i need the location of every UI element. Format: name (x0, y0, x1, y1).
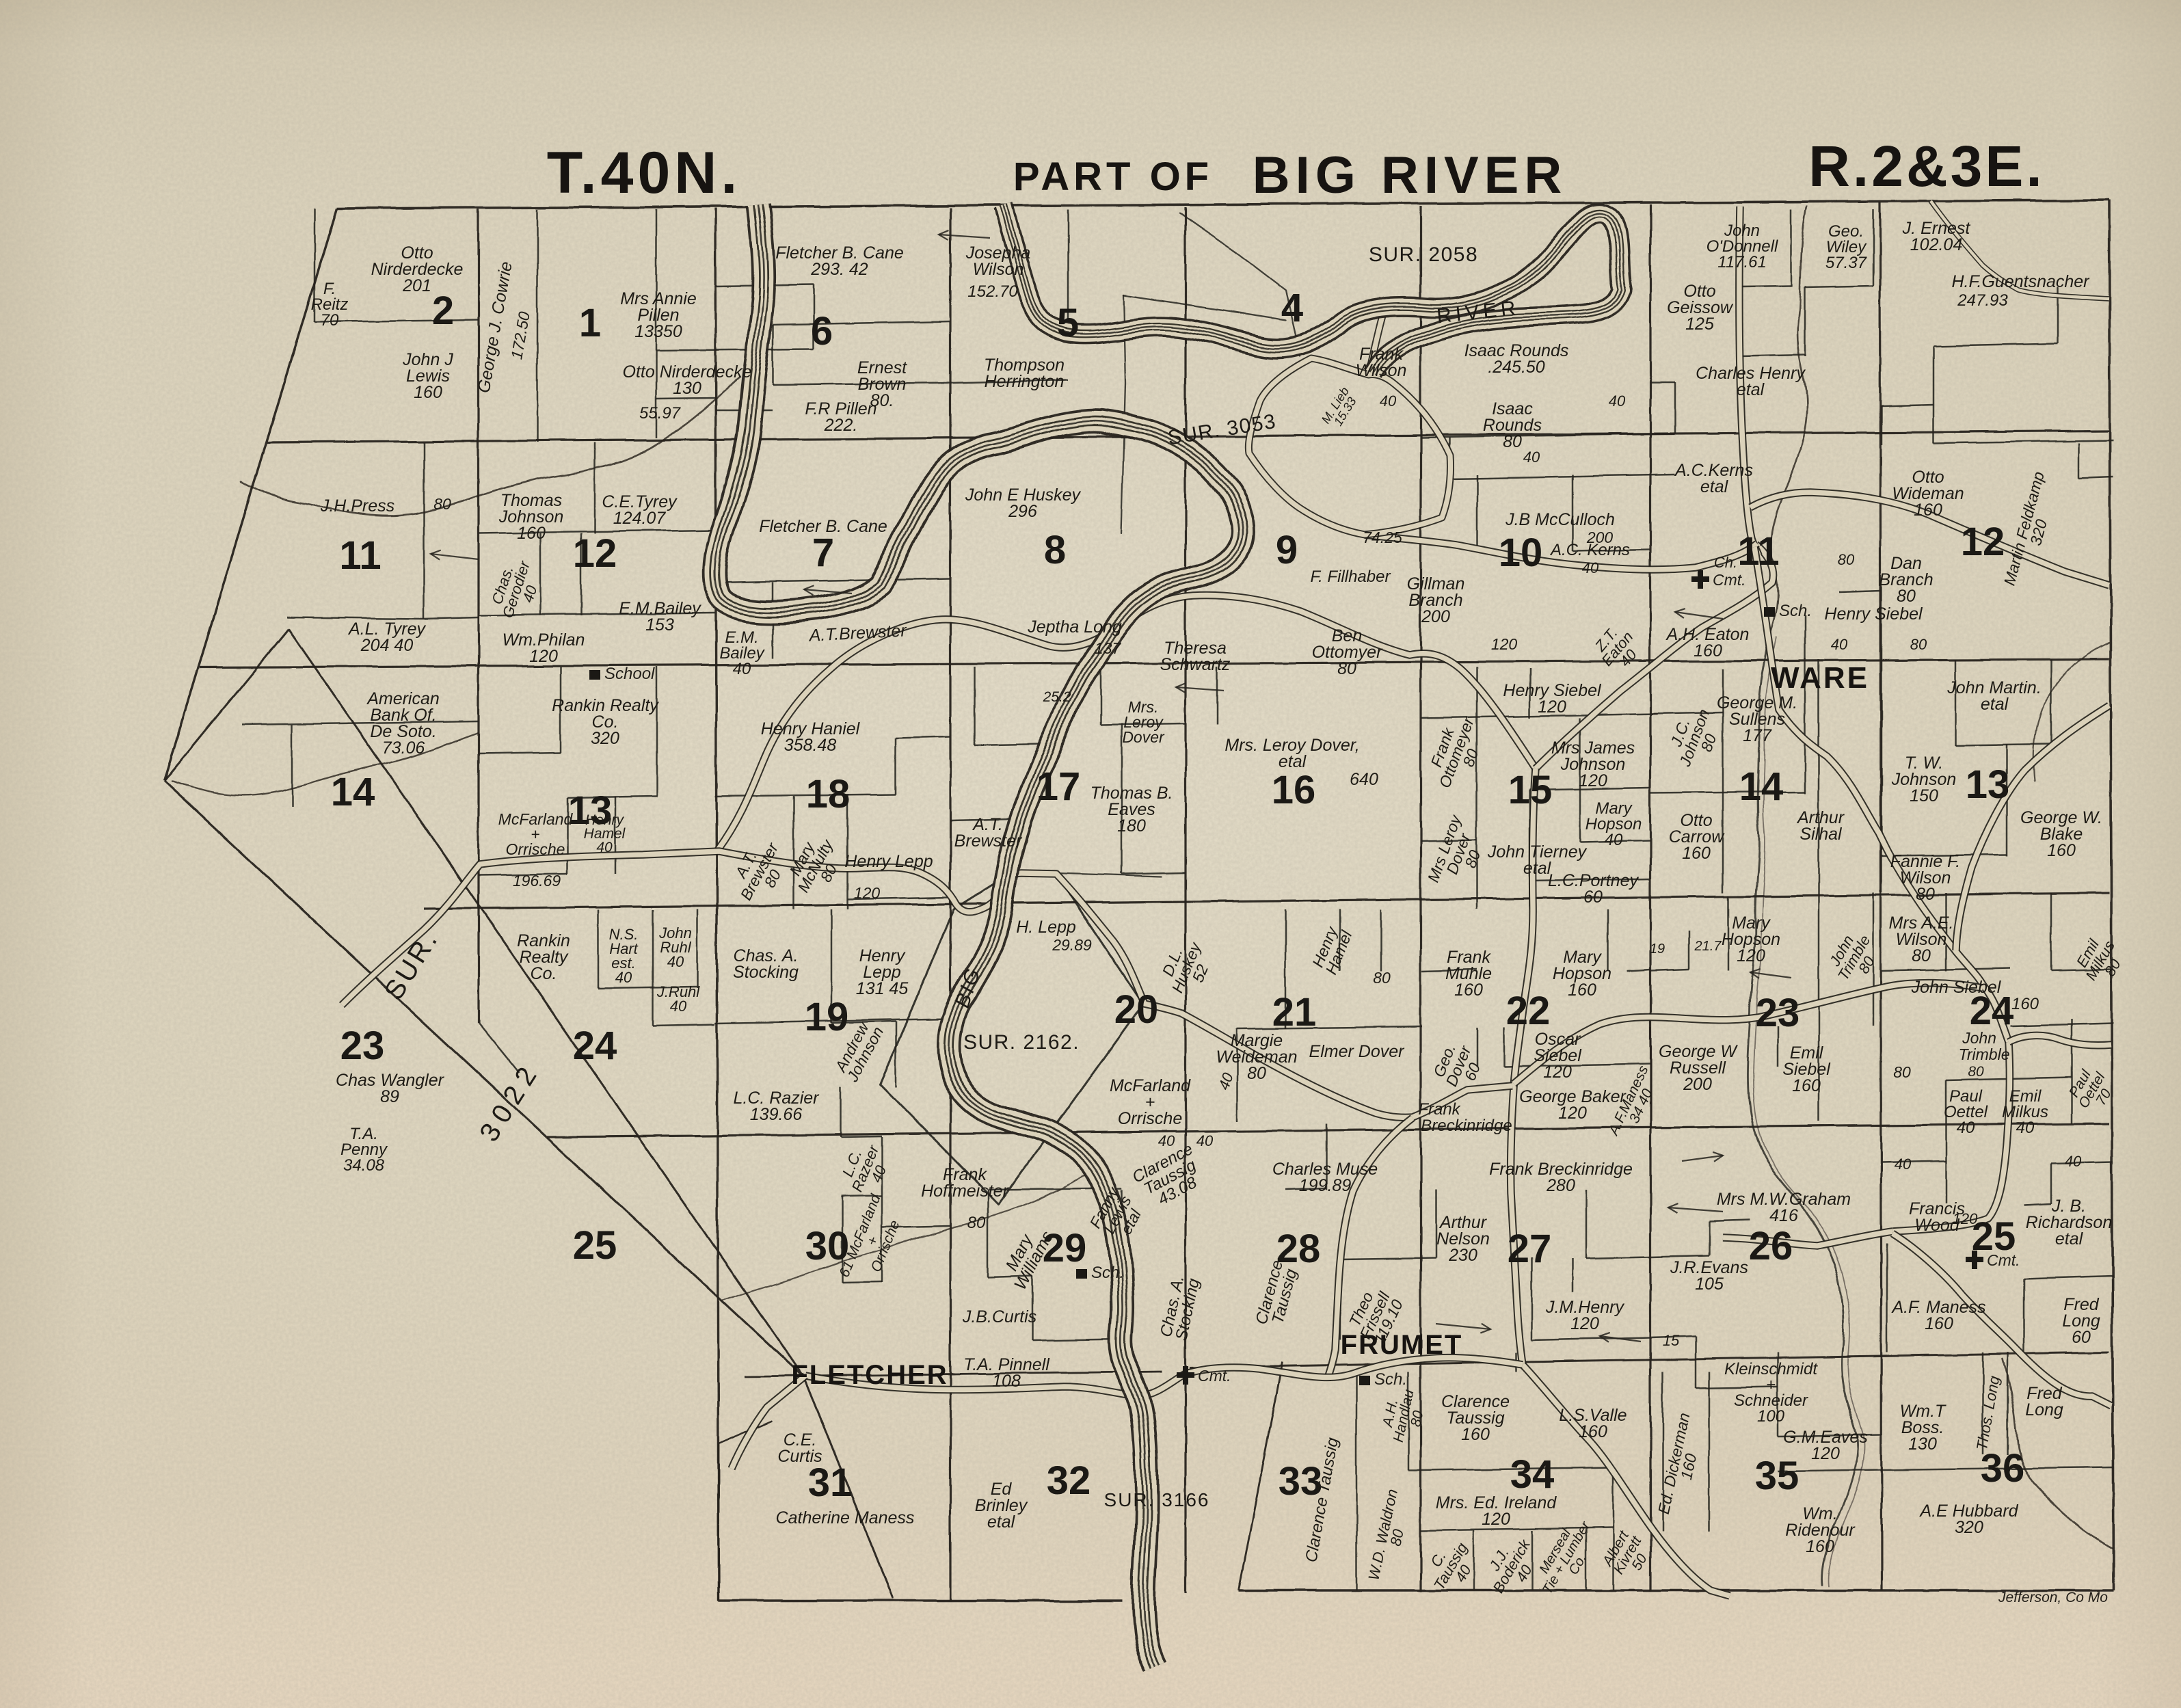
svg-text:H.F.Guentsnacher: H.F.Guentsnacher (1951, 272, 2090, 291)
svg-text:SUR. 2058: SUR. 2058 (1369, 243, 1478, 266)
svg-text:40: 40 (1215, 1070, 1237, 1092)
svg-text:Chas.Gerodier40: Chas.Gerodier40 (485, 554, 548, 625)
svg-text:T.A.Penny34.08: T.A.Penny34.08 (340, 1125, 388, 1175)
svg-text:Cmt.: Cmt. (1987, 1251, 2020, 1269)
svg-text:18: 18 (806, 772, 851, 816)
svg-text:Mrs. Ed. Ireland120: Mrs. Ed. Ireland120 (1436, 1493, 1557, 1529)
svg-text:C.E.Curtis: C.E.Curtis (777, 1430, 822, 1466)
svg-text:55.97: 55.97 (639, 404, 682, 423)
svg-text:40: 40 (1523, 449, 1540, 466)
svg-text:80: 80 (433, 495, 451, 513)
svg-text:OscarSiebel120: OscarSiebel120 (1534, 1030, 1582, 1082)
svg-text:J.R.Evans105: J.R.Evans105 (1670, 1258, 1748, 1294)
svg-text:ArthurSilhal: ArthurSilhal (1796, 808, 1845, 844)
svg-text:Sch.: Sch. (1374, 1370, 1407, 1389)
svg-text:RankinRealtyCo.: RankinRealtyCo. (517, 931, 570, 983)
svg-text:Frank: Frank (1418, 1100, 1461, 1119)
svg-text:Jefferson, Co Mo: Jefferson, Co Mo (1998, 1590, 2108, 1605)
svg-text:BIG RIVER: BIG RIVER (1253, 146, 1568, 204)
svg-text:Catherine Maness: Catherine Maness (776, 1508, 915, 1527)
svg-text:McFarland+Orrische: McFarland+Orrische (1110, 1076, 1191, 1128)
svg-text:J.B.Curtis: J.B.Curtis (962, 1307, 1036, 1326)
svg-text:JosephaWilson: JosephaWilson (965, 243, 1031, 279)
svg-text:EmilSiebel160: EmilSiebel160 (1782, 1043, 1831, 1095)
svg-text:SUR. 3053: SUR. 3053 (1166, 410, 1278, 450)
svg-text:35: 35 (1755, 1454, 1799, 1498)
svg-text:152.70: 152.70 (967, 282, 1018, 301)
svg-text:Sch.: Sch. (1779, 602, 1812, 620)
svg-text:SUR. 3166: SUR. 3166 (1104, 1489, 1210, 1510)
svg-text:40: 40 (2065, 1153, 2082, 1170)
svg-text:J.B McCulloch: J.B McCulloch (1505, 510, 1615, 529)
svg-text:L.C.Portney60: L.C.Portney60 (1548, 871, 1640, 907)
svg-text:Trimble: Trimble (1959, 1045, 2010, 1063)
svg-text:19: 19 (805, 995, 849, 1039)
svg-text:AlbertKivrett50: AlbertKivrett50 (1599, 1526, 1657, 1584)
svg-text:Mrs.LeroyDover: Mrs.LeroyDover (1122, 698, 1165, 746)
svg-text:T.40N.: T.40N. (547, 140, 742, 206)
svg-text:ClarenceTaussig160: ClarenceTaussig160 (1441, 1392, 1510, 1444)
svg-text:John E Huskey296: John E Huskey296 (965, 485, 1082, 521)
svg-text:5: 5 (1057, 301, 1079, 345)
svg-text:E.M.Bailey40: E.M.Bailey40 (719, 628, 765, 678)
svg-text:A.C. Kerns: A.C. Kerns (1549, 541, 1630, 559)
svg-text:25: 25 (573, 1223, 617, 1268)
svg-text:AmericanBank Of.De Soto.73.06: AmericanBank Of.De Soto.73.06 (366, 689, 440, 758)
svg-text:Charles Henryetal: Charles Henryetal (1696, 364, 1806, 399)
svg-text:George WRussell200: George WRussell200 (1659, 1042, 1738, 1094)
svg-text:21.7: 21.7 (1694, 939, 1722, 954)
svg-text:13: 13 (1966, 762, 2010, 807)
svg-text:A.H. Eaton160: A.H. Eaton160 (1665, 625, 1750, 660)
svg-text:HenryHamel: HenryHamel (1308, 922, 1356, 976)
svg-text:1: 1 (579, 301, 601, 345)
svg-text:ArthurNelson230: ArthurNelson230 (1436, 1213, 1490, 1265)
svg-text:Cmt.: Cmt. (1198, 1367, 1231, 1385)
svg-text:DanBranch80: DanBranch80 (1879, 554, 1933, 606)
svg-text:F.R Pillen222.: F.R Pillen222. (805, 399, 877, 435)
svg-text:ThomasJohnson160: ThomasJohnson160 (498, 491, 564, 543)
svg-text:Otto Nirderdecke130: Otto Nirderdecke130 (623, 362, 752, 398)
svg-text:John Martin.etal: John Martin.etal (1946, 678, 2042, 714)
svg-text:TheresaSchwartz: TheresaSchwartz (1160, 639, 1231, 674)
svg-text:12: 12 (1961, 520, 2005, 564)
svg-text:Cmt.: Cmt. (1713, 571, 1746, 589)
svg-text:9: 9 (1276, 528, 1298, 572)
svg-text:N.S.Hartest.40: N.S.Hartest.40 (609, 926, 639, 986)
svg-text:M. Lieb15.33: M. Lieb15.33 (1319, 384, 1362, 432)
svg-text:247.93: 247.93 (1957, 291, 2008, 310)
svg-text:F. Fillhaber: F. Fillhaber (1311, 568, 1391, 586)
svg-text:120: 120 (1491, 635, 1518, 653)
svg-text:BenOttomyer80: BenOttomyer80 (1312, 626, 1383, 678)
svg-text:A.E Hubbard320: A.E Hubbard320 (1918, 1502, 2018, 1537)
svg-text:40: 40 (1831, 636, 1848, 653)
svg-text:PaulOettel40: PaulOettel40 (1944, 1087, 1988, 1137)
svg-text:Wm.Ridenour160: Wm.Ridenour160 (1785, 1504, 1856, 1556)
svg-text:80: 80 (1838, 551, 1855, 568)
svg-text:JohnTrimble80: JohnTrimble80 (1822, 925, 1886, 991)
svg-text:A.T.Brewster80: A.T.Brewster80 (723, 832, 795, 910)
svg-text:JohnRuhl40: JohnRuhl40 (658, 924, 692, 970)
svg-text:Chas. A.Stocking: Chas. A.Stocking (733, 946, 799, 982)
svg-text:Fletcher B. Cane: Fletcher B. Cane (759, 517, 887, 536)
svg-text:23: 23 (340, 1024, 385, 1068)
svg-text:Martin Feldkamp320: Martin Feldkamp320 (2001, 470, 2063, 591)
svg-text:L.C.Razeer40: L.C.Razeer40 (835, 1136, 896, 1199)
svg-text:T. W.Johnson150: T. W.Johnson150 (1891, 753, 1957, 805)
svg-text:40: 40 (1380, 392, 1397, 410)
svg-text:OttoGeissow125: OttoGeissow125 (1667, 282, 1734, 334)
svg-text:IsaacRounds80: IsaacRounds80 (1483, 399, 1542, 451)
svg-text:John JLewis160: John JLewis160 (402, 350, 453, 402)
svg-text:4: 4 (1281, 286, 1303, 330)
svg-text:J.J.Boderick40: J.J.Boderick40 (1477, 1529, 1546, 1603)
svg-text:32: 32 (1047, 1458, 1091, 1503)
svg-text:40: 40 (1609, 392, 1626, 410)
svg-text:Henry Siebel120: Henry Siebel120 (1503, 681, 1602, 717)
svg-text:196.69: 196.69 (513, 872, 561, 890)
svg-text:19: 19 (1650, 942, 1665, 957)
svg-text:Elmer Dover: Elmer Dover (1309, 1042, 1406, 1061)
svg-text:FLETCHER: FLETCHER (791, 1360, 948, 1390)
svg-text:12: 12 (573, 531, 617, 576)
svg-text:FredLong: FredLong (2025, 1384, 2063, 1419)
svg-text:10: 10 (1499, 531, 1543, 575)
svg-text:14: 14 (331, 770, 375, 814)
svg-text:Rankin RealtyCo.320: Rankin RealtyCo.320 (552, 696, 659, 748)
svg-text:J.Ruhl40: J.Ruhl40 (656, 983, 700, 1015)
svg-text:74.25: 74.25 (1363, 529, 1402, 546)
svg-text:HenryHamel40: HenryHamel40 (584, 812, 626, 855)
svg-text:L.S.Valle160: L.S.Valle160 (1559, 1406, 1627, 1441)
svg-text:Geo.Wiley57.37: Geo.Wiley57.37 (1825, 222, 1868, 272)
svg-text:8: 8 (1044, 528, 1066, 572)
svg-text:A.H.Handlau80: A.H.Handlau80 (1377, 1385, 1430, 1447)
svg-text:MaryHopson160: MaryHopson160 (1553, 948, 1611, 1000)
svg-text:17: 17 (1036, 764, 1081, 809)
svg-text:SUR. 2162.: SUR. 2162. (963, 1031, 1080, 1054)
svg-text:FrankMuhle160: FrankMuhle160 (1445, 948, 1492, 1000)
svg-text:A.C.Kernsetal: A.C.Kernsetal (1674, 461, 1753, 496)
svg-text:24: 24 (573, 1024, 617, 1068)
svg-text:A.L. Tyrey204 40: A.L. Tyrey204 40 (347, 619, 427, 655)
svg-text:6: 6 (811, 309, 833, 353)
svg-text:George Baker120: George Baker120 (1519, 1087, 1627, 1123)
svg-text:Wm.Philan120: Wm.Philan120 (503, 630, 585, 666)
svg-text:22: 22 (1506, 989, 1551, 1033)
svg-text:23: 23 (1756, 991, 1800, 1035)
svg-text:11: 11 (339, 533, 381, 578)
svg-text:Henry Lepp: Henry Lepp (844, 852, 933, 871)
svg-text:80: 80 (1968, 1064, 1984, 1080)
svg-text:640: 640 (1350, 770, 1378, 789)
svg-text:7: 7 (812, 531, 834, 575)
svg-text:JohnO'Donnell117.61: JohnO'Donnell117.61 (1707, 222, 1778, 271)
svg-text:OttoWideman160: OttoWideman160 (1892, 468, 1964, 520)
svg-text:Henry Haniel358.48: Henry Haniel358.48 (761, 719, 861, 755)
svg-text:EdBrinleyetal: EdBrinleyetal (975, 1480, 1028, 1532)
svg-text:160: 160 (2011, 995, 2039, 1013)
svg-text:George W.Blake160: George W.Blake160 (2020, 808, 2102, 860)
svg-text:26: 26 (1749, 1224, 1793, 1268)
svg-text:Mrs. Leroy Dover,etal: Mrs. Leroy Dover,etal (1225, 736, 1359, 771)
svg-text:A.T.Brewster: A.T.Brewster (807, 621, 908, 645)
svg-text:A.F. Maness160: A.F. Maness160 (1890, 1298, 1985, 1333)
svg-text:W.D. Waldron80: W.D. Waldron80 (1365, 1487, 1415, 1584)
svg-text:15: 15 (1663, 1332, 1680, 1349)
svg-text:Sch.: Sch. (1091, 1264, 1124, 1282)
svg-text:John: John (1962, 1029, 1996, 1047)
svg-text:ThompsonHerrington: ThompsonHerrington (984, 356, 1065, 391)
svg-text:40: 40 (1582, 559, 1599, 576)
svg-text:Jeptha Long: Jeptha Long (1027, 617, 1122, 637)
svg-text:J. Ernest102.04: J. Ernest102.04 (1902, 219, 1971, 254)
svg-text:WARE: WARE (1771, 661, 1869, 695)
svg-text:20: 20 (1114, 987, 1159, 1032)
svg-text:J.H.Press: J.H.Press (320, 496, 394, 516)
svg-text:Fletcher B. Cane293. 42: Fletcher B. Cane293. 42 (775, 243, 904, 279)
svg-text:Isaac Rounds.245.50: Isaac Rounds.245.50 (1464, 341, 1569, 377)
svg-text:C.E.Tyrey124.07: C.E.Tyrey124.07 (602, 492, 678, 528)
svg-text:Mrs A.E.Wilson80: Mrs A.E.Wilson80 (1889, 913, 1954, 965)
svg-text:H. Lepp: H. Lepp (1016, 918, 1076, 937)
svg-text:EmilMilkus80: EmilMilkus80 (2070, 931, 2130, 990)
svg-text:Mrs AnniePillen13350: Mrs AnniePillen13350 (620, 289, 697, 341)
svg-text:GillmanBranch200: GillmanBranch200 (1407, 574, 1465, 626)
svg-text:Breckinridge: Breckinridge (1421, 1117, 1512, 1135)
svg-text:Thomas B.Eaves180: Thomas B.Eaves180 (1090, 784, 1173, 836)
svg-text:40: 40 (1895, 1156, 1912, 1173)
svg-text:15: 15 (1508, 768, 1553, 812)
svg-text:Ch.: Ch. (1714, 554, 1737, 571)
svg-text:Henry Siebel: Henry Siebel (1824, 604, 1923, 624)
svg-text:Fannie F.Wilson80: Fannie F.Wilson80 (1890, 852, 1960, 904)
svg-text:11: 11 (1737, 529, 1779, 574)
svg-text:John Siebel: John Siebel (1911, 978, 2002, 997)
svg-text:OttoCarrow160: OttoCarrow160 (1669, 811, 1726, 863)
svg-text:George J. Cowrie: George J. Cowrie (474, 260, 516, 394)
svg-text:34: 34 (1510, 1452, 1555, 1497)
svg-text:Mrs JamesJohnson120: Mrs JamesJohnson120 (1551, 738, 1635, 790)
svg-text:Z.T.Eaton40: Z.T.Eaton40 (1587, 619, 1647, 678)
svg-text:FrankHoffmeister: FrankHoffmeister (921, 1165, 1009, 1201)
svg-text:L.C. Razier139.66: L.C. Razier139.66 (733, 1089, 820, 1124)
svg-text:Mrs LeroyDover80: Mrs LeroyDover80 (1424, 812, 1493, 894)
svg-text:29.89: 29.89 (1052, 936, 1092, 954)
svg-text:172.50: 172.50 (507, 310, 533, 361)
svg-text:J.M.Henry120: J.M.Henry120 (1545, 1298, 1624, 1333)
svg-text:3022: 3022 (474, 1056, 546, 1147)
svg-text:R.2&3E.: R.2&3E. (1808, 134, 2044, 198)
svg-text:14: 14 (1739, 764, 1784, 809)
svg-text:OttoNirderdecke201: OttoNirderdecke201 (371, 243, 464, 295)
svg-text:McFarland+Orrische: McFarland+Orrische (498, 810, 574, 858)
svg-text:80: 80 (1910, 636, 1927, 653)
svg-text:120: 120 (1953, 1210, 1978, 1227)
svg-text:FredLong60: FredLong60 (2062, 1295, 2100, 1347)
svg-text:D.L.Huskey52: D.L.Huskey52 (1154, 933, 1218, 1001)
svg-text:120: 120 (854, 884, 881, 902)
svg-text:27: 27 (1508, 1227, 1552, 1271)
svg-text:PART OF: PART OF (1013, 155, 1213, 199)
svg-text:Chas Wangler89: Chas Wangler89 (336, 1071, 445, 1106)
svg-text:40: 40 (1158, 1132, 1175, 1149)
svg-text:Wm.TBoss.130: Wm.TBoss.130 (1900, 1402, 1946, 1454)
svg-text:Kleinschmidt+Schneider100: Kleinschmidt+Schneider100 (1724, 1360, 1818, 1426)
svg-text:FrankOttomeyer80: FrankOttomeyer80 (1421, 709, 1492, 795)
svg-text:21: 21 (1272, 990, 1317, 1035)
svg-text:HenryLepp131 45: HenryLepp131 45 (856, 946, 909, 998)
svg-text:80: 80 (967, 1214, 986, 1232)
svg-text:2: 2 (432, 289, 454, 333)
svg-text:Chas. A.Stocking: Chas. A.Stocking (1157, 1273, 1203, 1342)
svg-text:E.M.Bailey153: E.M.Bailey153 (619, 599, 701, 635)
svg-text:40: 40 (1196, 1132, 1214, 1149)
svg-text:80: 80 (1893, 1063, 1911, 1081)
svg-text:25.2: 25.2 (1043, 689, 1071, 705)
svg-text:ClarenceTaussig43.08: ClarenceTaussig43.08 (1129, 1140, 1211, 1215)
svg-text:31: 31 (808, 1460, 853, 1505)
svg-text:80: 80 (1373, 969, 1391, 987)
svg-text:FrankWilson: FrankWilson (1356, 345, 1407, 380)
svg-text:137: 137 (1095, 639, 1122, 657)
svg-text:36: 36 (1981, 1446, 2025, 1491)
svg-text:School: School (604, 665, 655, 683)
svg-text:16: 16 (1272, 768, 1316, 812)
svg-text:MaryHopson120: MaryHopson120 (1722, 913, 1780, 965)
svg-text:Thos. Long: Thos. Long (1973, 1374, 2003, 1452)
